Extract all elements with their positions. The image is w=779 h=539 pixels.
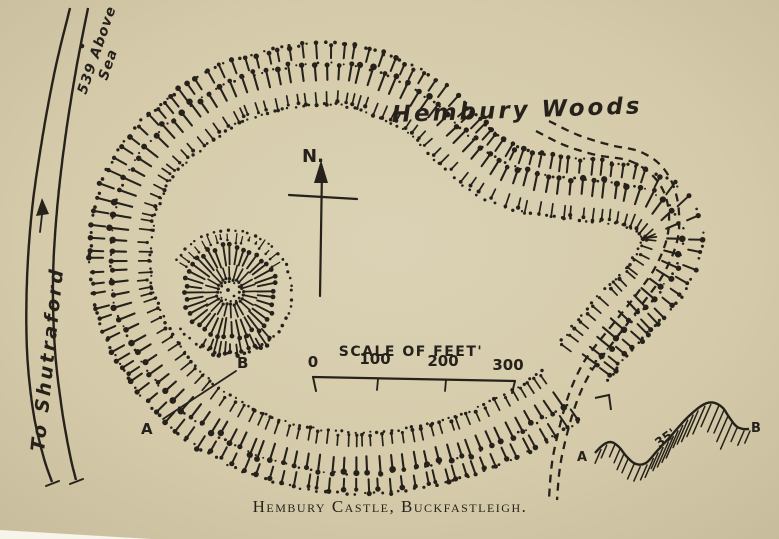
profile-label-b: B xyxy=(751,421,761,436)
plan-section-label-b: B xyxy=(237,354,248,372)
scale-tick-300: 300 xyxy=(492,356,523,374)
north-label: N. xyxy=(302,146,324,167)
hillfort-plan-map: Hembury Woods N. To Shutraford 539 Above… xyxy=(0,0,779,539)
scale-tick-200: 200 xyxy=(427,352,458,370)
scale-tick-100: 100 xyxy=(359,350,390,368)
plan-section-label-a: A xyxy=(141,420,153,438)
profile-label-a: A xyxy=(577,450,587,465)
scale-tick-0: 0 xyxy=(308,353,318,371)
map-caption: Hembury Castle, Buckfastleigh. xyxy=(253,497,528,516)
book-page: Hembury Woods N. To Shutraford 539 Above… xyxy=(0,0,779,539)
